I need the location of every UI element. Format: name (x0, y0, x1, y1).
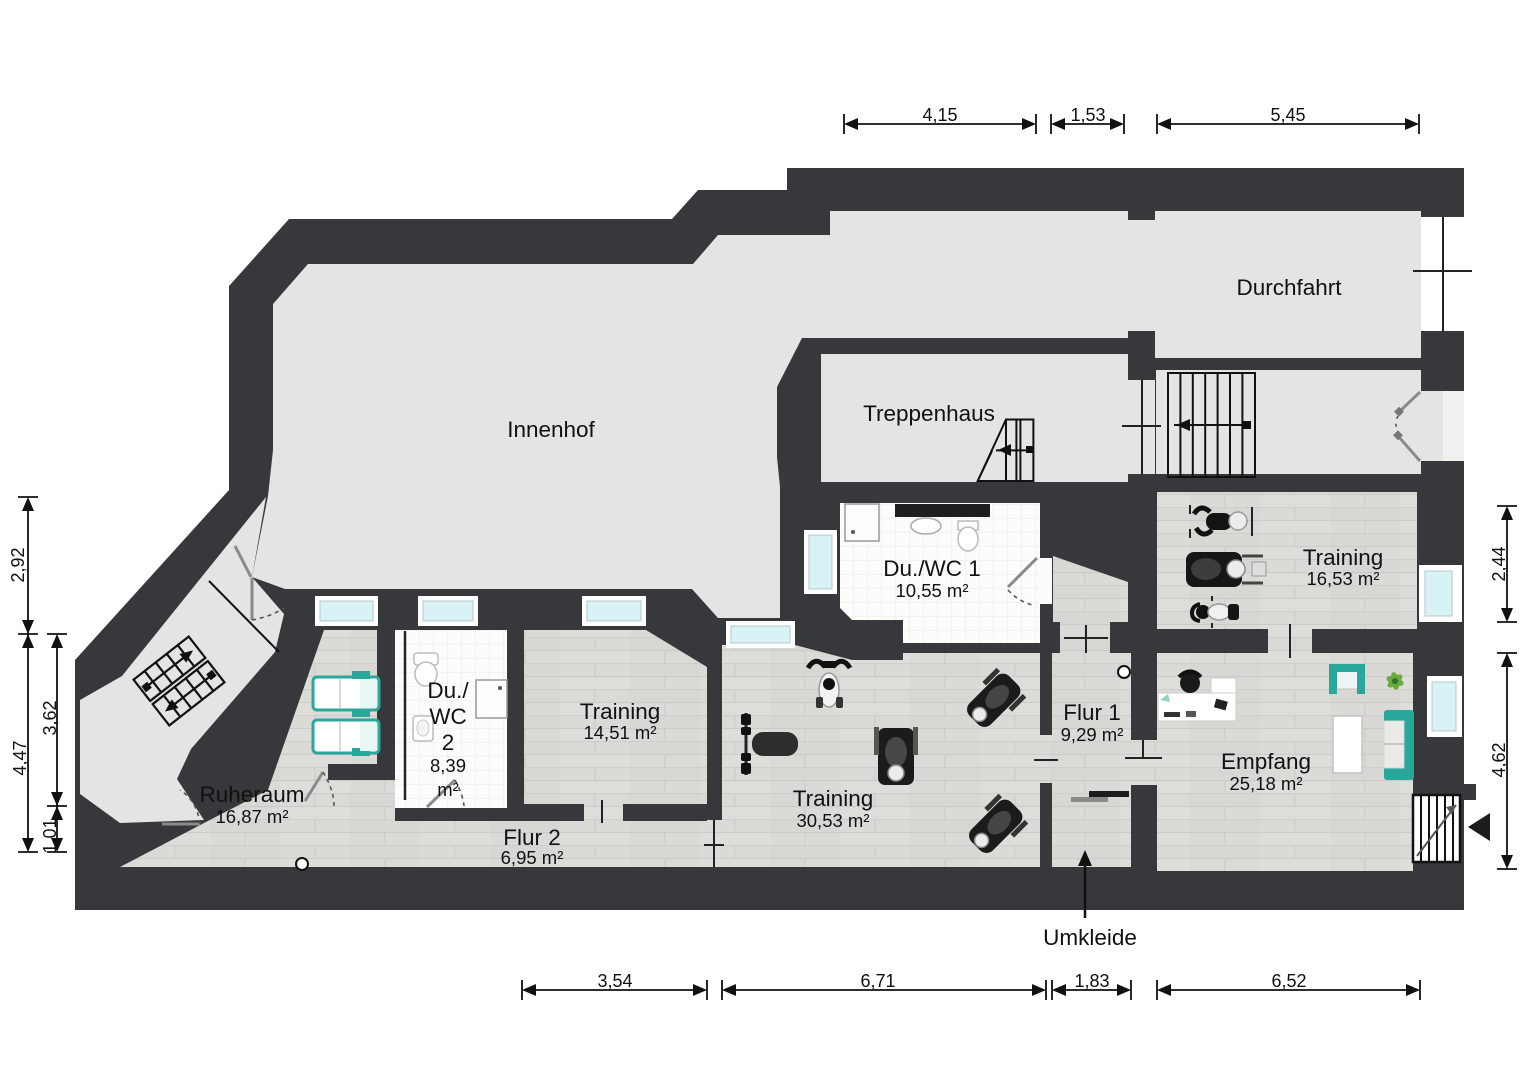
svg-text:3,62: 3,62 (40, 700, 60, 735)
svg-text:6,95 m²: 6,95 m² (501, 847, 564, 868)
svg-text:2,92: 2,92 (8, 547, 28, 582)
svg-text:16,53 m²: 16,53 m² (1306, 568, 1379, 589)
svg-text:Ruheraum: Ruheraum (199, 782, 304, 807)
svg-text:5,45: 5,45 (1270, 105, 1305, 125)
svg-text:2,44: 2,44 (1489, 546, 1509, 581)
svg-text:30,53 m²: 30,53 m² (796, 810, 869, 831)
svg-text:3,54: 3,54 (597, 971, 632, 991)
svg-text:Empfang: Empfang (1221, 749, 1311, 774)
svg-text:25,18 m²: 25,18 m² (1229, 773, 1302, 794)
svg-text:Du./WC 1: Du./WC 1 (883, 556, 981, 581)
svg-text:6,52: 6,52 (1271, 971, 1306, 991)
svg-text:6,71: 6,71 (860, 971, 895, 991)
svg-text:16,87 m²: 16,87 m² (215, 806, 288, 827)
svg-text:4,62: 4,62 (1489, 742, 1509, 777)
svg-text:10,55 m²: 10,55 m² (895, 580, 968, 601)
svg-text:Training: Training (580, 699, 660, 724)
svg-text:1,01: 1,01 (40, 818, 60, 853)
svg-text:Innenhof: Innenhof (507, 417, 595, 442)
svg-text:4,15: 4,15 (922, 105, 957, 125)
svg-text:WC: WC (429, 704, 467, 729)
svg-text:Training: Training (793, 786, 873, 811)
svg-text:Du./: Du./ (427, 678, 469, 703)
svg-text:Training: Training (1303, 545, 1383, 570)
svg-text:m²: m² (437, 779, 459, 800)
svg-text:8,39: 8,39 (430, 755, 466, 776)
svg-text:Treppenhaus: Treppenhaus (863, 401, 995, 426)
svg-text:1,53: 1,53 (1070, 105, 1105, 125)
svg-text:Umkleide: Umkleide (1043, 925, 1137, 950)
svg-text:14,51 m²: 14,51 m² (583, 722, 656, 743)
svg-text:Flur 1: Flur 1 (1063, 700, 1121, 725)
svg-text:4,47: 4,47 (10, 740, 30, 775)
svg-text:Durchfahrt: Durchfahrt (1236, 275, 1342, 300)
svg-text:9,29 m²: 9,29 m² (1061, 724, 1124, 745)
svg-text:1,83: 1,83 (1074, 971, 1109, 991)
svg-text:2: 2 (442, 730, 455, 755)
